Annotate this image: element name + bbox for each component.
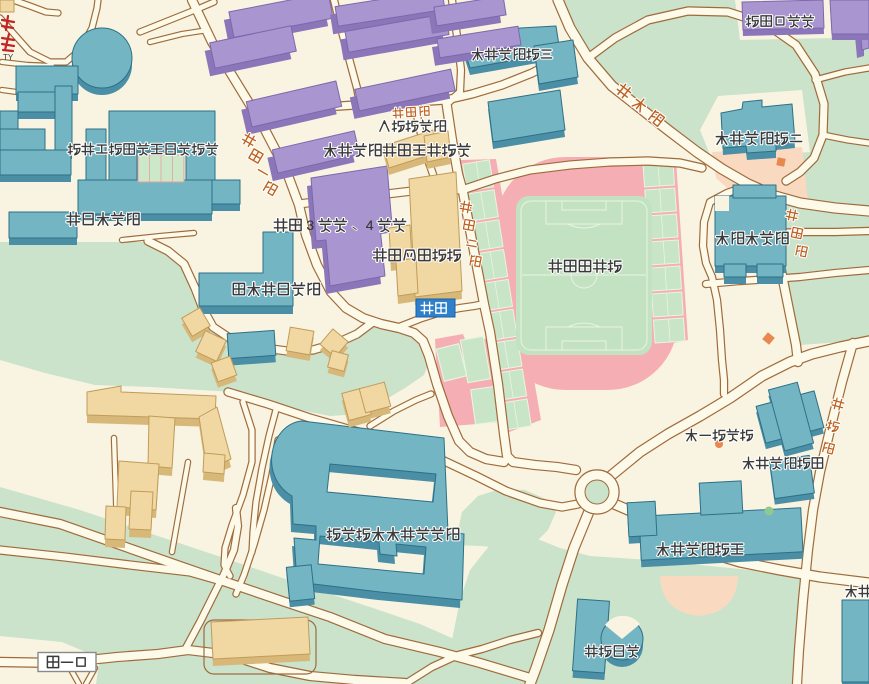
svg-text:3: 3 [306, 217, 314, 233]
svg-text:4: 4 [366, 217, 374, 233]
svg-text:TY: TY [3, 53, 14, 62]
